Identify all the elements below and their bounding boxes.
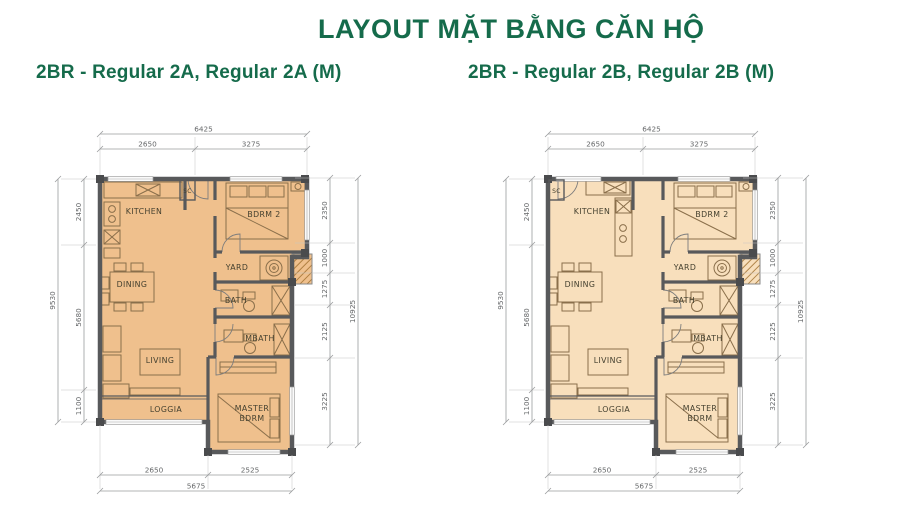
dim-label: 2525 [689, 466, 708, 475]
dim-label: 1000 [320, 248, 329, 267]
room-label-loggia: LOGGIA [150, 405, 183, 414]
dim-label: 1100 [74, 396, 83, 415]
dim-label: 3225 [320, 392, 329, 411]
dim-label: 6425 [194, 125, 213, 134]
dim-label: 2350 [320, 201, 329, 220]
dim-label: 2650 [593, 466, 612, 475]
structural-column [652, 448, 660, 456]
layout-page: LAYOUT MẶT BẰNG CĂN HỘ 2BR - Regular 2A,… [0, 0, 901, 513]
room-label-bdrm2: BDRM 2 [695, 210, 728, 219]
room-label-bath: BATH [225, 296, 247, 305]
floorplan-svg-regular-2b: KITCHENBDRM 2YARDBATHDININGMBATHLIVINGLO… [488, 112, 823, 502]
dim-label: 3275 [690, 140, 709, 149]
dim-label: 2450 [522, 202, 531, 221]
structural-column [204, 448, 212, 456]
room-label-bath: BATH [673, 296, 695, 305]
dim-label: 1275 [320, 280, 329, 299]
room-label-mbath: MBATH [693, 334, 722, 343]
room-label-kitchen: KITCHEN [126, 207, 163, 216]
room-label-sc: SC [552, 188, 561, 195]
dim-label: 2650 [138, 140, 157, 149]
dim-label: 6425 [642, 125, 661, 134]
room-label-sc: SC [183, 188, 192, 195]
room-label-mbath: MBATH [245, 334, 274, 343]
structural-column [736, 448, 744, 456]
dim-label: 2525 [241, 466, 260, 475]
dim-label: 9530 [48, 291, 57, 310]
room-label-master_line1: MASTER [235, 404, 270, 413]
plan-b-subtitle: 2BR - Regular 2B, Regular 2B (M) [468, 62, 774, 84]
dim-label: 2650 [586, 140, 605, 149]
room-label-master_line2: BDRM [687, 414, 712, 423]
room-label-living: LIVING [146, 356, 175, 365]
structural-column [301, 175, 309, 183]
page-title: LAYOUT MẶT BẰNG CĂN HỘ [318, 14, 705, 45]
room-label-living: LIVING [594, 356, 623, 365]
structural-column [749, 175, 757, 183]
structural-column [96, 418, 104, 426]
room-label-loggia: LOGGIA [598, 405, 631, 414]
dim-label: 10925 [796, 300, 805, 323]
room-label-yard: YARD [225, 263, 249, 272]
dim-label: 1000 [768, 248, 777, 267]
room-label-dining: DINING [117, 280, 148, 289]
dim-label: 3225 [768, 392, 777, 411]
dim-label: 5680 [74, 308, 83, 327]
dim-label: 5675 [187, 482, 206, 491]
room-label-yard: YARD [673, 263, 697, 272]
structural-column [96, 175, 104, 183]
dim-label: 1100 [522, 396, 531, 415]
dim-label: 2650 [145, 466, 164, 475]
dim-label: 5675 [635, 482, 654, 491]
room-label-dining: DINING [565, 280, 596, 289]
structural-column [301, 249, 309, 257]
floorplan-svg-regular-2a: KITCHENBDRM 2YARDBATHDININGMBATHLIVINGLO… [40, 112, 375, 502]
structural-column [736, 278, 744, 286]
structural-column [288, 448, 296, 456]
structural-column [288, 278, 296, 286]
structural-column [544, 418, 552, 426]
dim-label: 9530 [496, 291, 505, 310]
room-label-kitchen: KITCHEN [574, 207, 611, 216]
floorplan-regular-2a: KITCHENBDRM 2YARDBATHDININGMBATHLIVINGLO… [40, 112, 375, 502]
dim-label: 2350 [768, 201, 777, 220]
dim-label: 2450 [74, 202, 83, 221]
dim-label: 3275 [242, 140, 261, 149]
room-label-bdrm2: BDRM 2 [247, 210, 280, 219]
dim-label: 2125 [320, 322, 329, 341]
floorplan-regular-2b: KITCHENBDRM 2YARDBATHDININGMBATHLIVINGLO… [488, 112, 823, 502]
plan-a-subtitle: 2BR - Regular 2A, Regular 2A (M) [36, 62, 342, 84]
dim-label: 1275 [768, 280, 777, 299]
dim-label: 5680 [522, 308, 531, 327]
structural-column [544, 175, 552, 183]
room-label-master_line1: MASTER [683, 404, 718, 413]
structural-column [749, 249, 757, 257]
dim-label: 2125 [768, 322, 777, 341]
room-label-master_line2: BDRM [239, 414, 264, 423]
dim-label: 10925 [348, 300, 357, 323]
